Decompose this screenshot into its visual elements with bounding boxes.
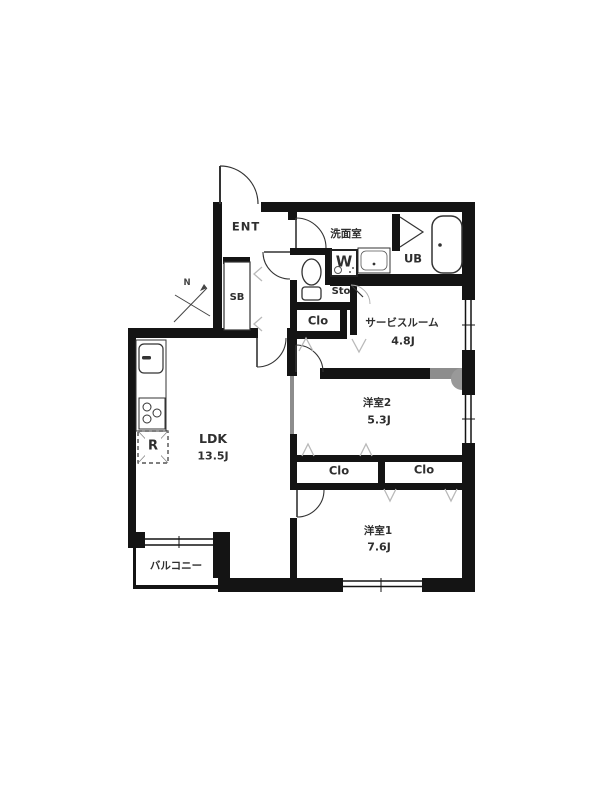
floor-plan: ENT 洗面室 UB W Sto Clo サービスルーム 4.8J SB N L… xyxy=(0,0,600,800)
kitchen-counter xyxy=(136,340,166,431)
washroom-door xyxy=(296,218,326,248)
label-ldk-size: 13.5J xyxy=(197,451,228,462)
toilet xyxy=(302,259,321,300)
label-ldk: LDK xyxy=(199,433,227,446)
label-compass-north: N xyxy=(183,279,190,288)
kitchen-sink xyxy=(139,344,163,373)
service-room-window xyxy=(462,300,475,350)
label-washroom: 洗面室 xyxy=(330,229,362,240)
label-room2: 洋室2 xyxy=(363,398,391,409)
label-closet-hall: Clo xyxy=(308,315,328,327)
label-shoe-box: SB xyxy=(230,293,245,303)
label-refrigerator: R xyxy=(148,440,158,453)
ldk-window xyxy=(143,536,216,548)
bath-folding-door xyxy=(400,217,423,247)
floor-plan-drawing xyxy=(0,0,600,800)
label-entrance: ENT xyxy=(232,221,260,233)
room1-window xyxy=(343,578,422,592)
walls xyxy=(128,202,475,592)
ldk-entry-door xyxy=(257,338,286,367)
label-closet1: Clo xyxy=(329,465,349,477)
label-room1: 洋室1 xyxy=(364,526,392,537)
toilet-door xyxy=(263,252,290,279)
stove xyxy=(139,398,165,429)
label-storage: Sto xyxy=(332,287,351,297)
room1-door xyxy=(297,490,324,517)
compass xyxy=(174,284,210,322)
bathtub xyxy=(432,216,462,273)
room2-window xyxy=(462,395,475,443)
label-unit-bath: UB xyxy=(404,253,422,265)
label-washer: W xyxy=(336,255,353,270)
entrance-door xyxy=(220,166,258,204)
label-service-room: サービスルーム xyxy=(365,318,438,329)
label-room1-size: 7.6J xyxy=(367,542,391,553)
label-room2-size: 5.3J xyxy=(367,415,391,426)
washbasin xyxy=(358,248,390,273)
label-service-room-size: 4.8J xyxy=(391,336,415,347)
label-balcony: バルコニー xyxy=(150,561,202,572)
label-closet2: Clo xyxy=(414,464,434,476)
